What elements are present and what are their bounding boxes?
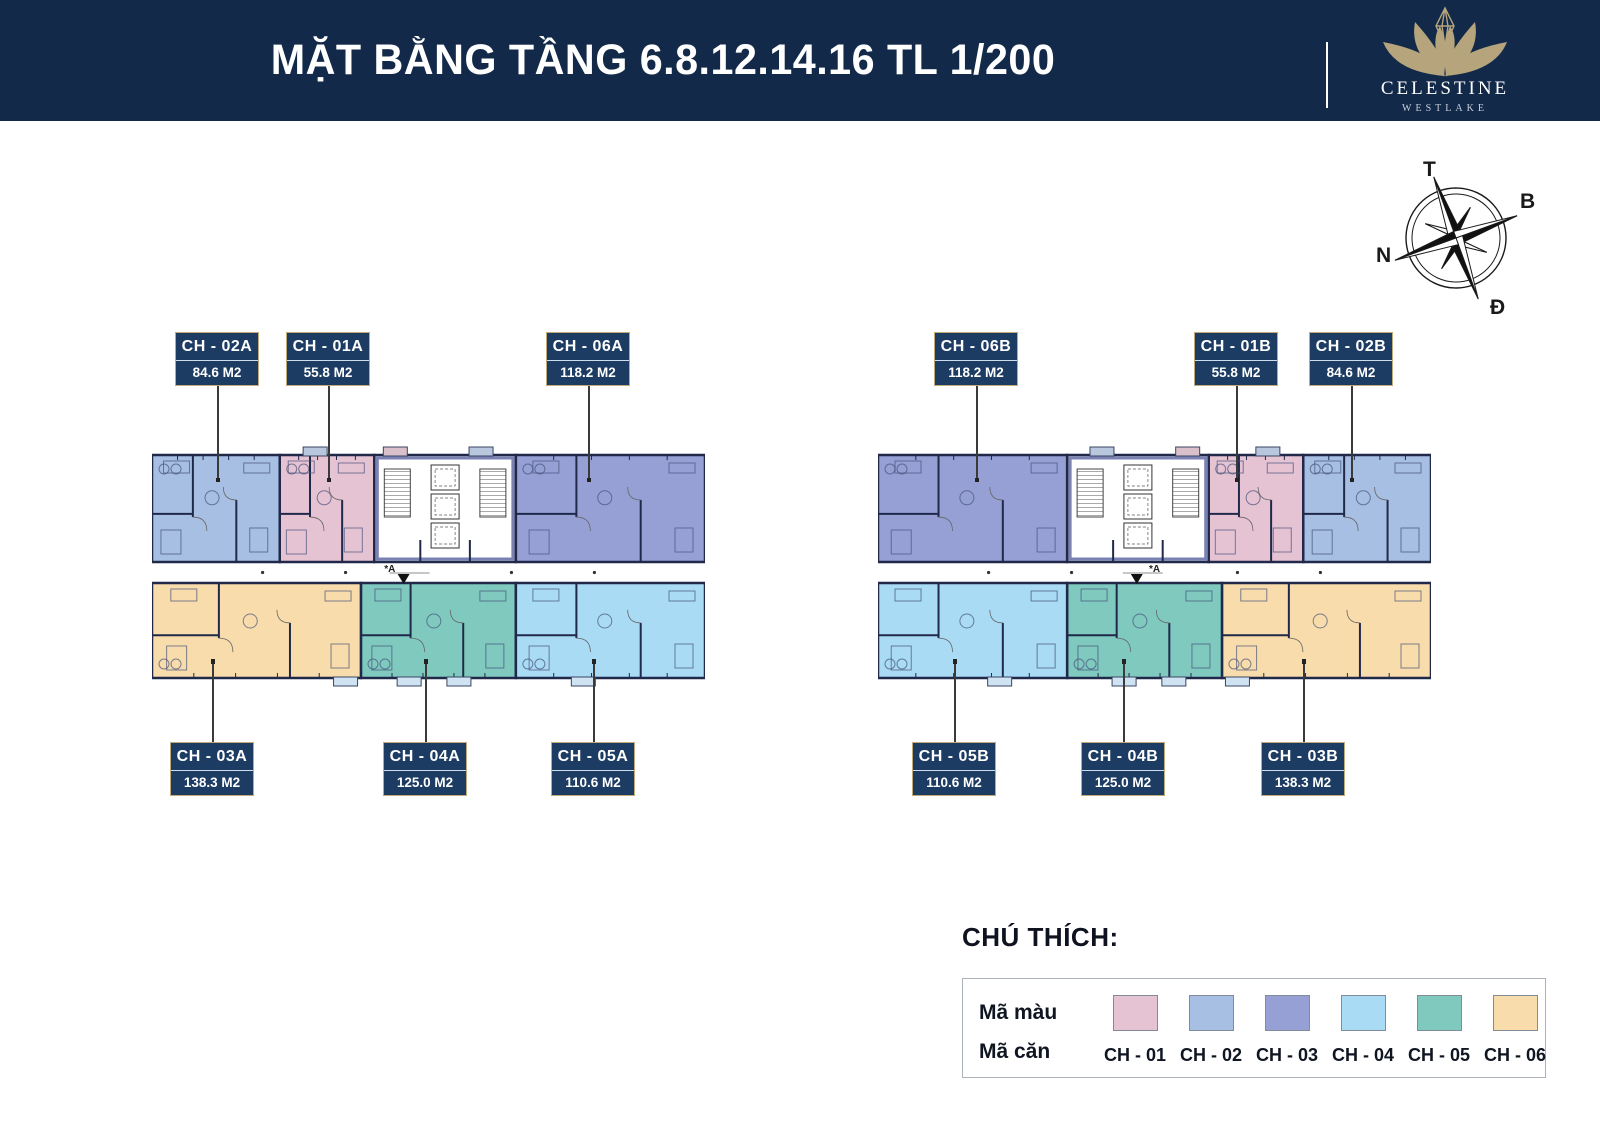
legend-code: CH - 03: [1249, 1037, 1325, 1066]
unit-area: 125.0 M2: [384, 770, 466, 795]
unit-code: CH - 03A: [171, 743, 253, 770]
unit-area: 138.3 M2: [1262, 770, 1344, 795]
balcony-tab: [1176, 447, 1200, 456]
unit-label: CH - 02B 84.6 M2: [1309, 332, 1393, 386]
unit-area: 84.6 M2: [176, 360, 258, 385]
block-a: *A: [152, 445, 705, 689]
unit-label: CH - 01A 55.8 M2: [286, 332, 370, 386]
unit-code: CH - 01A: [287, 333, 369, 360]
unit-area: 110.6 M2: [913, 770, 995, 795]
balcony-tab: [469, 447, 493, 456]
unit-area: 118.2 M2: [935, 360, 1017, 385]
unit-code: CH - 04B: [1082, 743, 1164, 770]
leader-line: [1123, 662, 1125, 742]
unit-code: CH - 06A: [547, 333, 629, 360]
apartment-unit: [516, 583, 705, 678]
leader-line: [1303, 662, 1305, 742]
compass-label-n: N: [1376, 244, 1391, 267]
legend-swatch-CH-05: [1417, 995, 1462, 1031]
unit-code: CH - 05B: [913, 743, 995, 770]
unit-code: CH - 02B: [1310, 333, 1392, 360]
unit-area: 118.2 M2: [547, 360, 629, 385]
compass-label-b: B: [1520, 190, 1535, 213]
unit-code: CH - 04A: [384, 743, 466, 770]
unit-label: CH - 03A 138.3 M2: [170, 742, 254, 796]
balcony-tab: [1090, 447, 1114, 456]
legend-code: CH - 04: [1325, 1037, 1401, 1066]
legend-swatch-CH-03: [1265, 995, 1310, 1031]
unit-code: CH - 03B: [1262, 743, 1344, 770]
apartment-unit: [1222, 583, 1431, 678]
unit-area: 84.6 M2: [1310, 360, 1392, 385]
apartment-unit: [1209, 455, 1304, 562]
unit-code: CH - 02A: [176, 333, 258, 360]
balcony-tab: [988, 677, 1012, 686]
legend-swatch-CH-01: [1113, 995, 1158, 1031]
balcony-tab: [447, 677, 471, 686]
balcony-tab: [334, 677, 358, 686]
legend-code: CH - 06: [1477, 1037, 1553, 1066]
compass-label-d: Đ: [1490, 296, 1505, 319]
balcony-tab: [1225, 677, 1249, 686]
apartment-unit: [878, 583, 1067, 678]
brand-logo: CELESTINE WESTLAKE: [1360, 4, 1530, 118]
unit-label: CH - 05A 110.6 M2: [551, 742, 635, 796]
legend-swatch-CH-02: [1189, 995, 1234, 1031]
legend-box: Mã màu Mã cănCH - 01CH - 02CH - 03CH - 0…: [962, 978, 1546, 1078]
header-divider: [1326, 42, 1328, 108]
leader-line: [588, 384, 590, 479]
unit-label: CH - 03B 138.3 M2: [1261, 742, 1345, 796]
floor-plan-page: MẶT BẰNG TẦNG 6.8.12.14.16 TL 1/200 CELE…: [0, 0, 1600, 1131]
balcony-tab: [1162, 677, 1186, 686]
apartment-unit: [1067, 583, 1222, 678]
brand-name: CELESTINE: [1360, 78, 1530, 100]
lotus-icon: [1380, 6, 1510, 78]
legend-swatch-CH-06: [1493, 995, 1538, 1031]
unit-label: CH - 04A 125.0 M2: [383, 742, 467, 796]
legend-unit-row-label: Mã căn: [979, 1040, 1097, 1064]
balcony-tab: [383, 447, 407, 456]
header-bar: MẶT BẰNG TẦNG 6.8.12.14.16 TL 1/200 CELE…: [0, 0, 1600, 121]
unit-area: 138.3 M2: [171, 770, 253, 795]
legend-swatch-CH-04: [1341, 995, 1386, 1031]
unit-code: CH - 05A: [552, 743, 634, 770]
brand-subtitle: WESTLAKE: [1360, 103, 1530, 114]
legend-code: CH - 05: [1401, 1037, 1477, 1066]
unit-label: CH - 06A 118.2 M2: [546, 332, 630, 386]
balcony-tab: [1256, 447, 1280, 456]
unit-label: CH - 04B 125.0 M2: [1081, 742, 1165, 796]
unit-label: CH - 06B 118.2 M2: [934, 332, 1018, 386]
leader-line: [425, 662, 427, 742]
unit-label: CH - 05B 110.6 M2: [912, 742, 996, 796]
unit-code: CH - 01B: [1195, 333, 1277, 360]
compass-label-t: T: [1423, 158, 1436, 181]
unit-area: 55.8 M2: [1195, 360, 1277, 385]
legend-code: CH - 01: [1097, 1037, 1173, 1066]
apartment-unit: [152, 583, 361, 678]
leader-line: [1236, 384, 1238, 479]
compass-rose: T B N Đ: [1368, 146, 1543, 321]
page-title: MẶT BẰNG TẦNG 6.8.12.14.16 TL 1/200: [27, 0, 1300, 121]
legend-heading: CHÚ THÍCH:: [962, 922, 1119, 953]
unit-label: CH - 02A 84.6 M2: [175, 332, 259, 386]
leader-line: [217, 384, 219, 479]
leader-line: [1351, 384, 1353, 479]
unit-label: CH - 01B 55.8 M2: [1194, 332, 1278, 386]
balcony-tab: [571, 677, 595, 686]
unit-code: CH - 06B: [935, 333, 1017, 360]
leader-line: [212, 662, 214, 742]
unit-area: 55.8 M2: [287, 360, 369, 385]
block-b: *A: [878, 445, 1431, 689]
leader-line: [593, 662, 595, 742]
leader-line: [328, 384, 330, 479]
legend-color-row-label: Mã màu: [979, 1001, 1097, 1025]
legend-code: CH - 02: [1173, 1037, 1249, 1066]
unit-area: 110.6 M2: [552, 770, 634, 795]
unit-area: 125.0 M2: [1082, 770, 1164, 795]
apartment-unit: [361, 583, 516, 678]
balcony-tab: [397, 677, 421, 686]
leader-line: [954, 662, 956, 742]
leader-line: [976, 384, 978, 479]
balcony-tab: [303, 447, 327, 456]
